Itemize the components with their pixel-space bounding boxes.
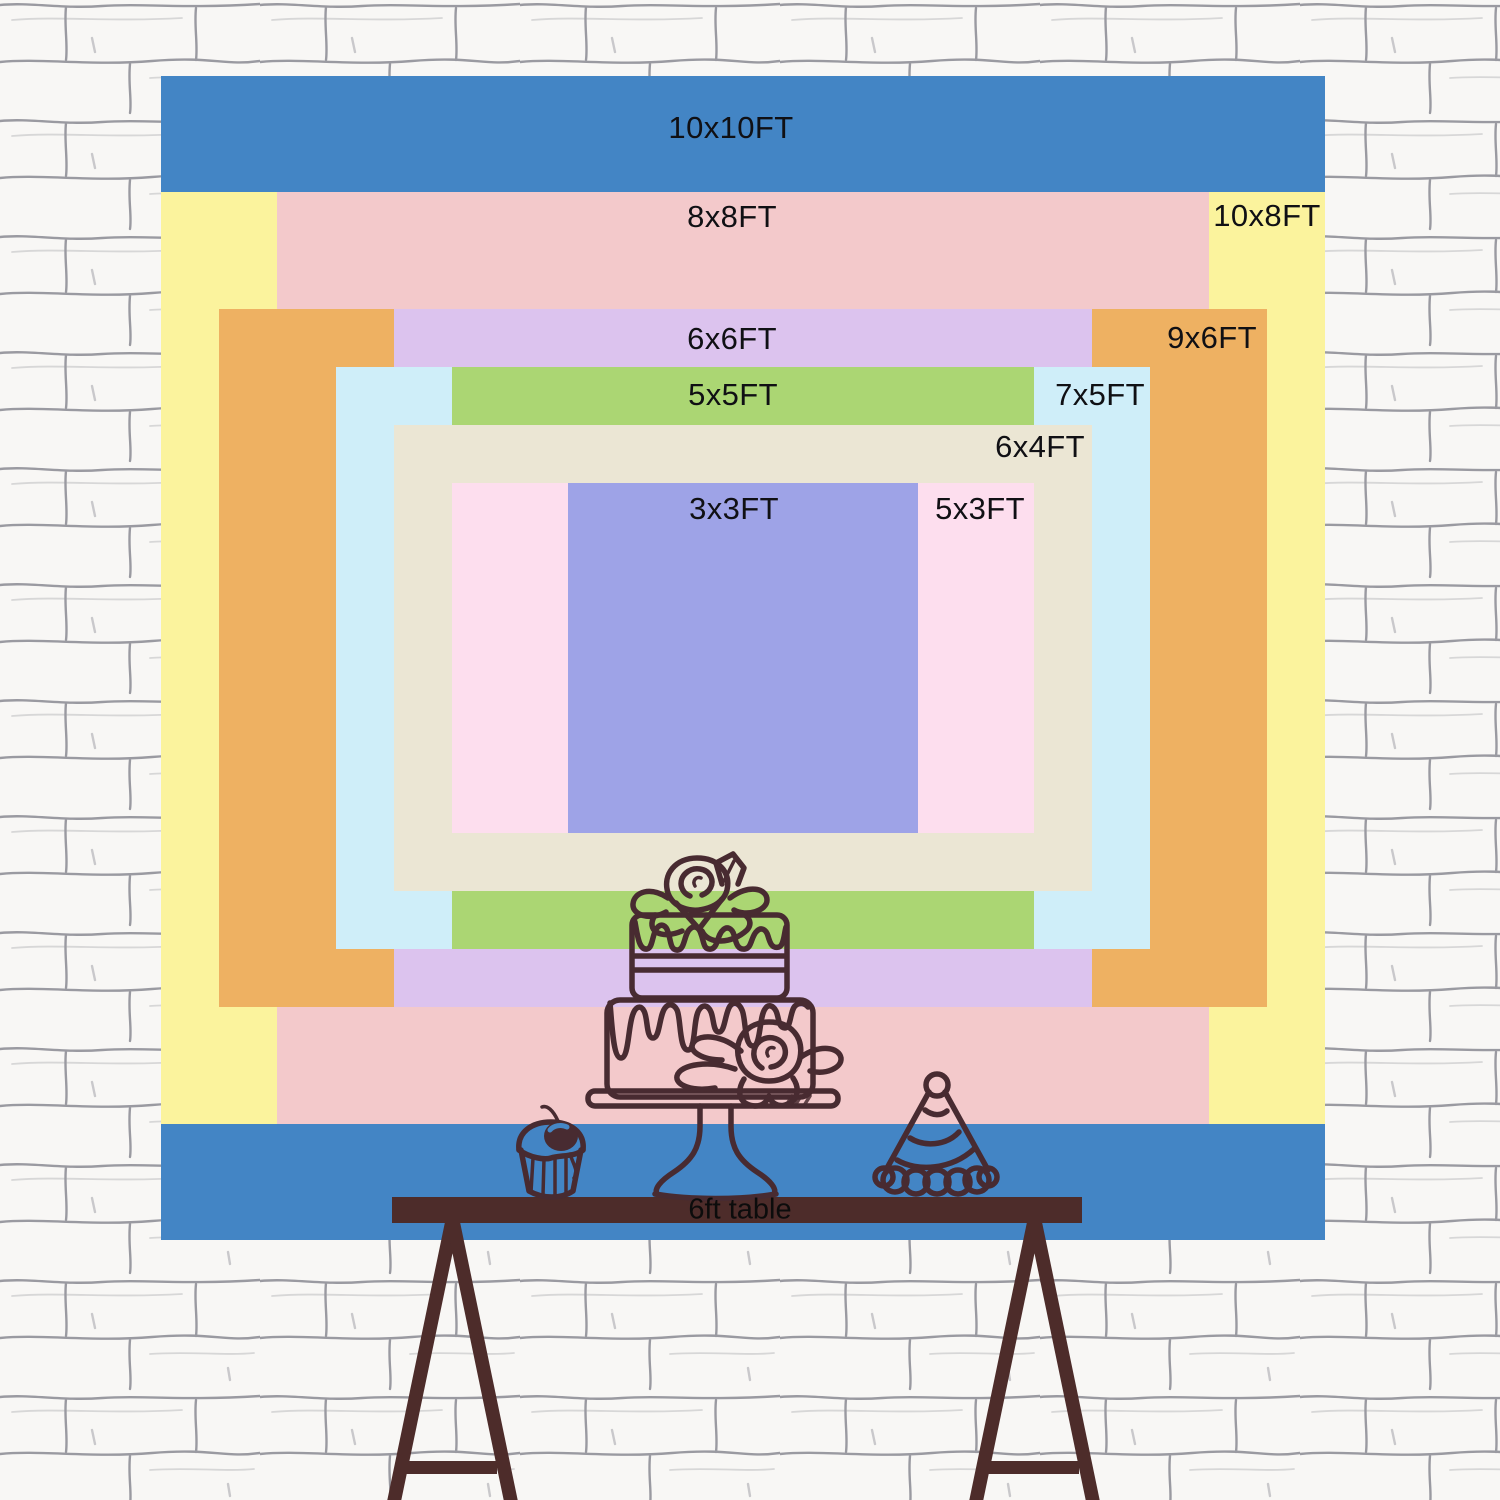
table-size-label: 6ft table: [688, 1194, 791, 1227]
cake-stand-stem: [655, 1106, 776, 1199]
table-leg-left: [384, 1222, 521, 1500]
cupcake-illustration: [519, 1107, 583, 1197]
party-hat-illustration: [875, 1074, 997, 1194]
backdrop-size-chart: 10x10FT10x8FT8x8FT9x6FT6x6FT7x5FT5x5FT6x…: [0, 0, 1500, 1500]
table-and-cake-illustration: [0, 0, 1500, 1500]
cake-upper-drips: [635, 922, 786, 950]
cake-lower-drips: [610, 1003, 808, 1058]
table-leg-right: [966, 1222, 1103, 1500]
cake-top-rose: [633, 854, 767, 941]
party-hat-brim: [875, 1168, 997, 1194]
cake-illustration: [588, 854, 841, 1199]
table: [384, 1197, 1103, 1500]
